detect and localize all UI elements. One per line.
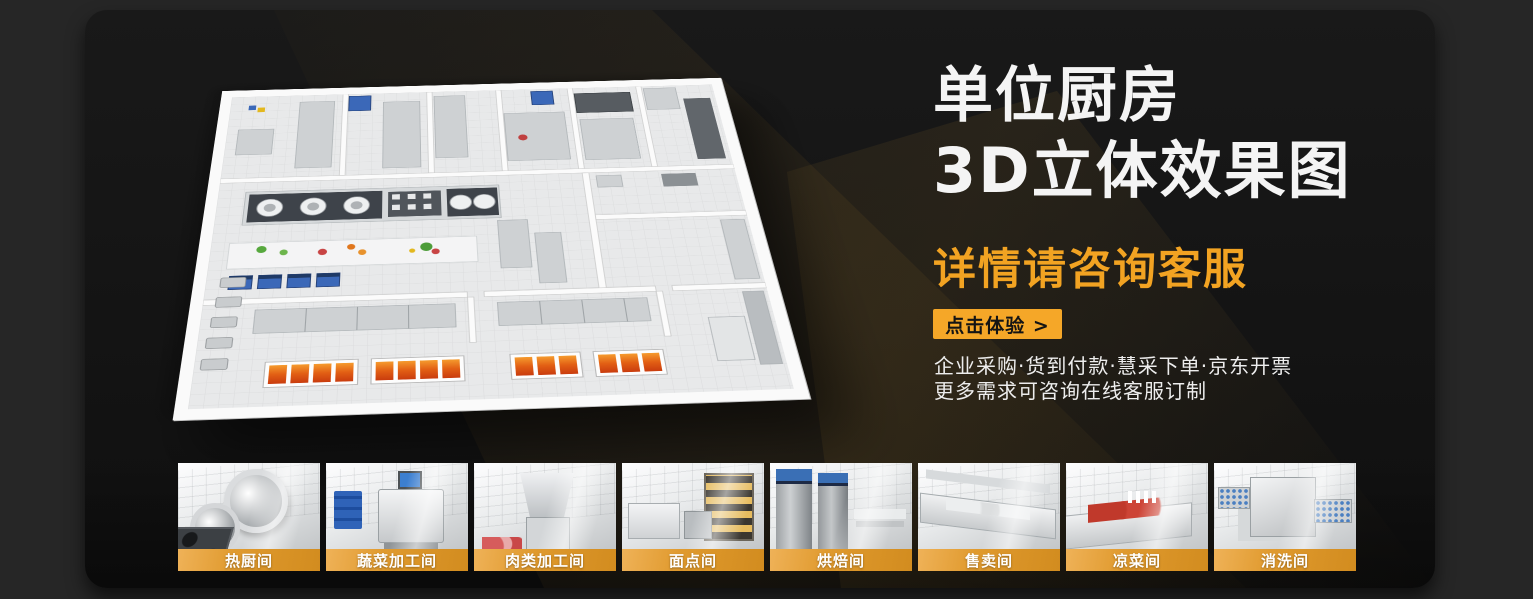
features-line1: 企业采购·货到付款·慧采下单·京东开票 bbox=[934, 356, 1292, 376]
washing-room-render bbox=[1214, 463, 1356, 549]
thumbnail-label: 热厨间 bbox=[178, 549, 320, 571]
features-line2: 更多需求可咨询在线客服订制 bbox=[934, 381, 1207, 401]
thumbnail-washing-room[interactable]: 消洗间 bbox=[1214, 463, 1356, 571]
hot-kitchen-render bbox=[178, 463, 320, 549]
thumbnail-label: 烘焙间 bbox=[770, 549, 912, 571]
thumbnail-label: 蔬菜加工间 bbox=[326, 549, 468, 571]
thumbnail-hot-kitchen[interactable]: 热厨间 bbox=[178, 463, 320, 571]
room-thumbnails: 热厨间 蔬菜加工间 肉类加工间 面点间 烘焙间 售卖间 凉菜间 消洗间 bbox=[178, 463, 1356, 571]
thumbnail-baking-room[interactable]: 烘焙间 bbox=[770, 463, 912, 571]
thumbnail-label: 肉类加工间 bbox=[474, 549, 616, 571]
sales-room-render bbox=[918, 463, 1060, 549]
thumbnail-label: 面点间 bbox=[622, 549, 764, 571]
thumbnail-pastry-room[interactable]: 面点间 bbox=[622, 463, 764, 571]
cta-button[interactable]: 点击体验 > bbox=[933, 309, 1062, 339]
thumbnail-label: 凉菜间 bbox=[1066, 549, 1208, 571]
title-line2: 3D立体效果图 bbox=[933, 140, 1352, 202]
thumbnail-meat-processing[interactable]: 肉类加工间 bbox=[474, 463, 616, 571]
meat-processing-render bbox=[474, 463, 616, 549]
kitchen-floor-plan-3d bbox=[202, 0, 762, 462]
baking-room-render bbox=[770, 463, 912, 549]
pastry-room-render bbox=[622, 463, 764, 549]
floor-plan-svg bbox=[188, 85, 794, 410]
thumbnail-label: 消洗间 bbox=[1214, 549, 1356, 571]
thumbnail-label: 售卖间 bbox=[918, 549, 1060, 571]
banner: 单位厨房 3D立体效果图 详情请咨询客服 点击体验 > 企业采购·货到付款·慧采… bbox=[0, 0, 1533, 599]
thumbnail-sales-room[interactable]: 售卖间 bbox=[918, 463, 1060, 571]
floor-plan-illustration bbox=[173, 78, 811, 421]
thumbnail-cold-dish-room[interactable]: 凉菜间 bbox=[1066, 463, 1208, 571]
vegetable-processing-render bbox=[326, 463, 468, 549]
cold-dish-room-render bbox=[1066, 463, 1208, 549]
title-line1: 单位厨房 bbox=[933, 66, 1181, 126]
thumbnail-vegetable-processing[interactable]: 蔬菜加工间 bbox=[326, 463, 468, 571]
subtitle: 详情请咨询客服 bbox=[933, 249, 1248, 292]
